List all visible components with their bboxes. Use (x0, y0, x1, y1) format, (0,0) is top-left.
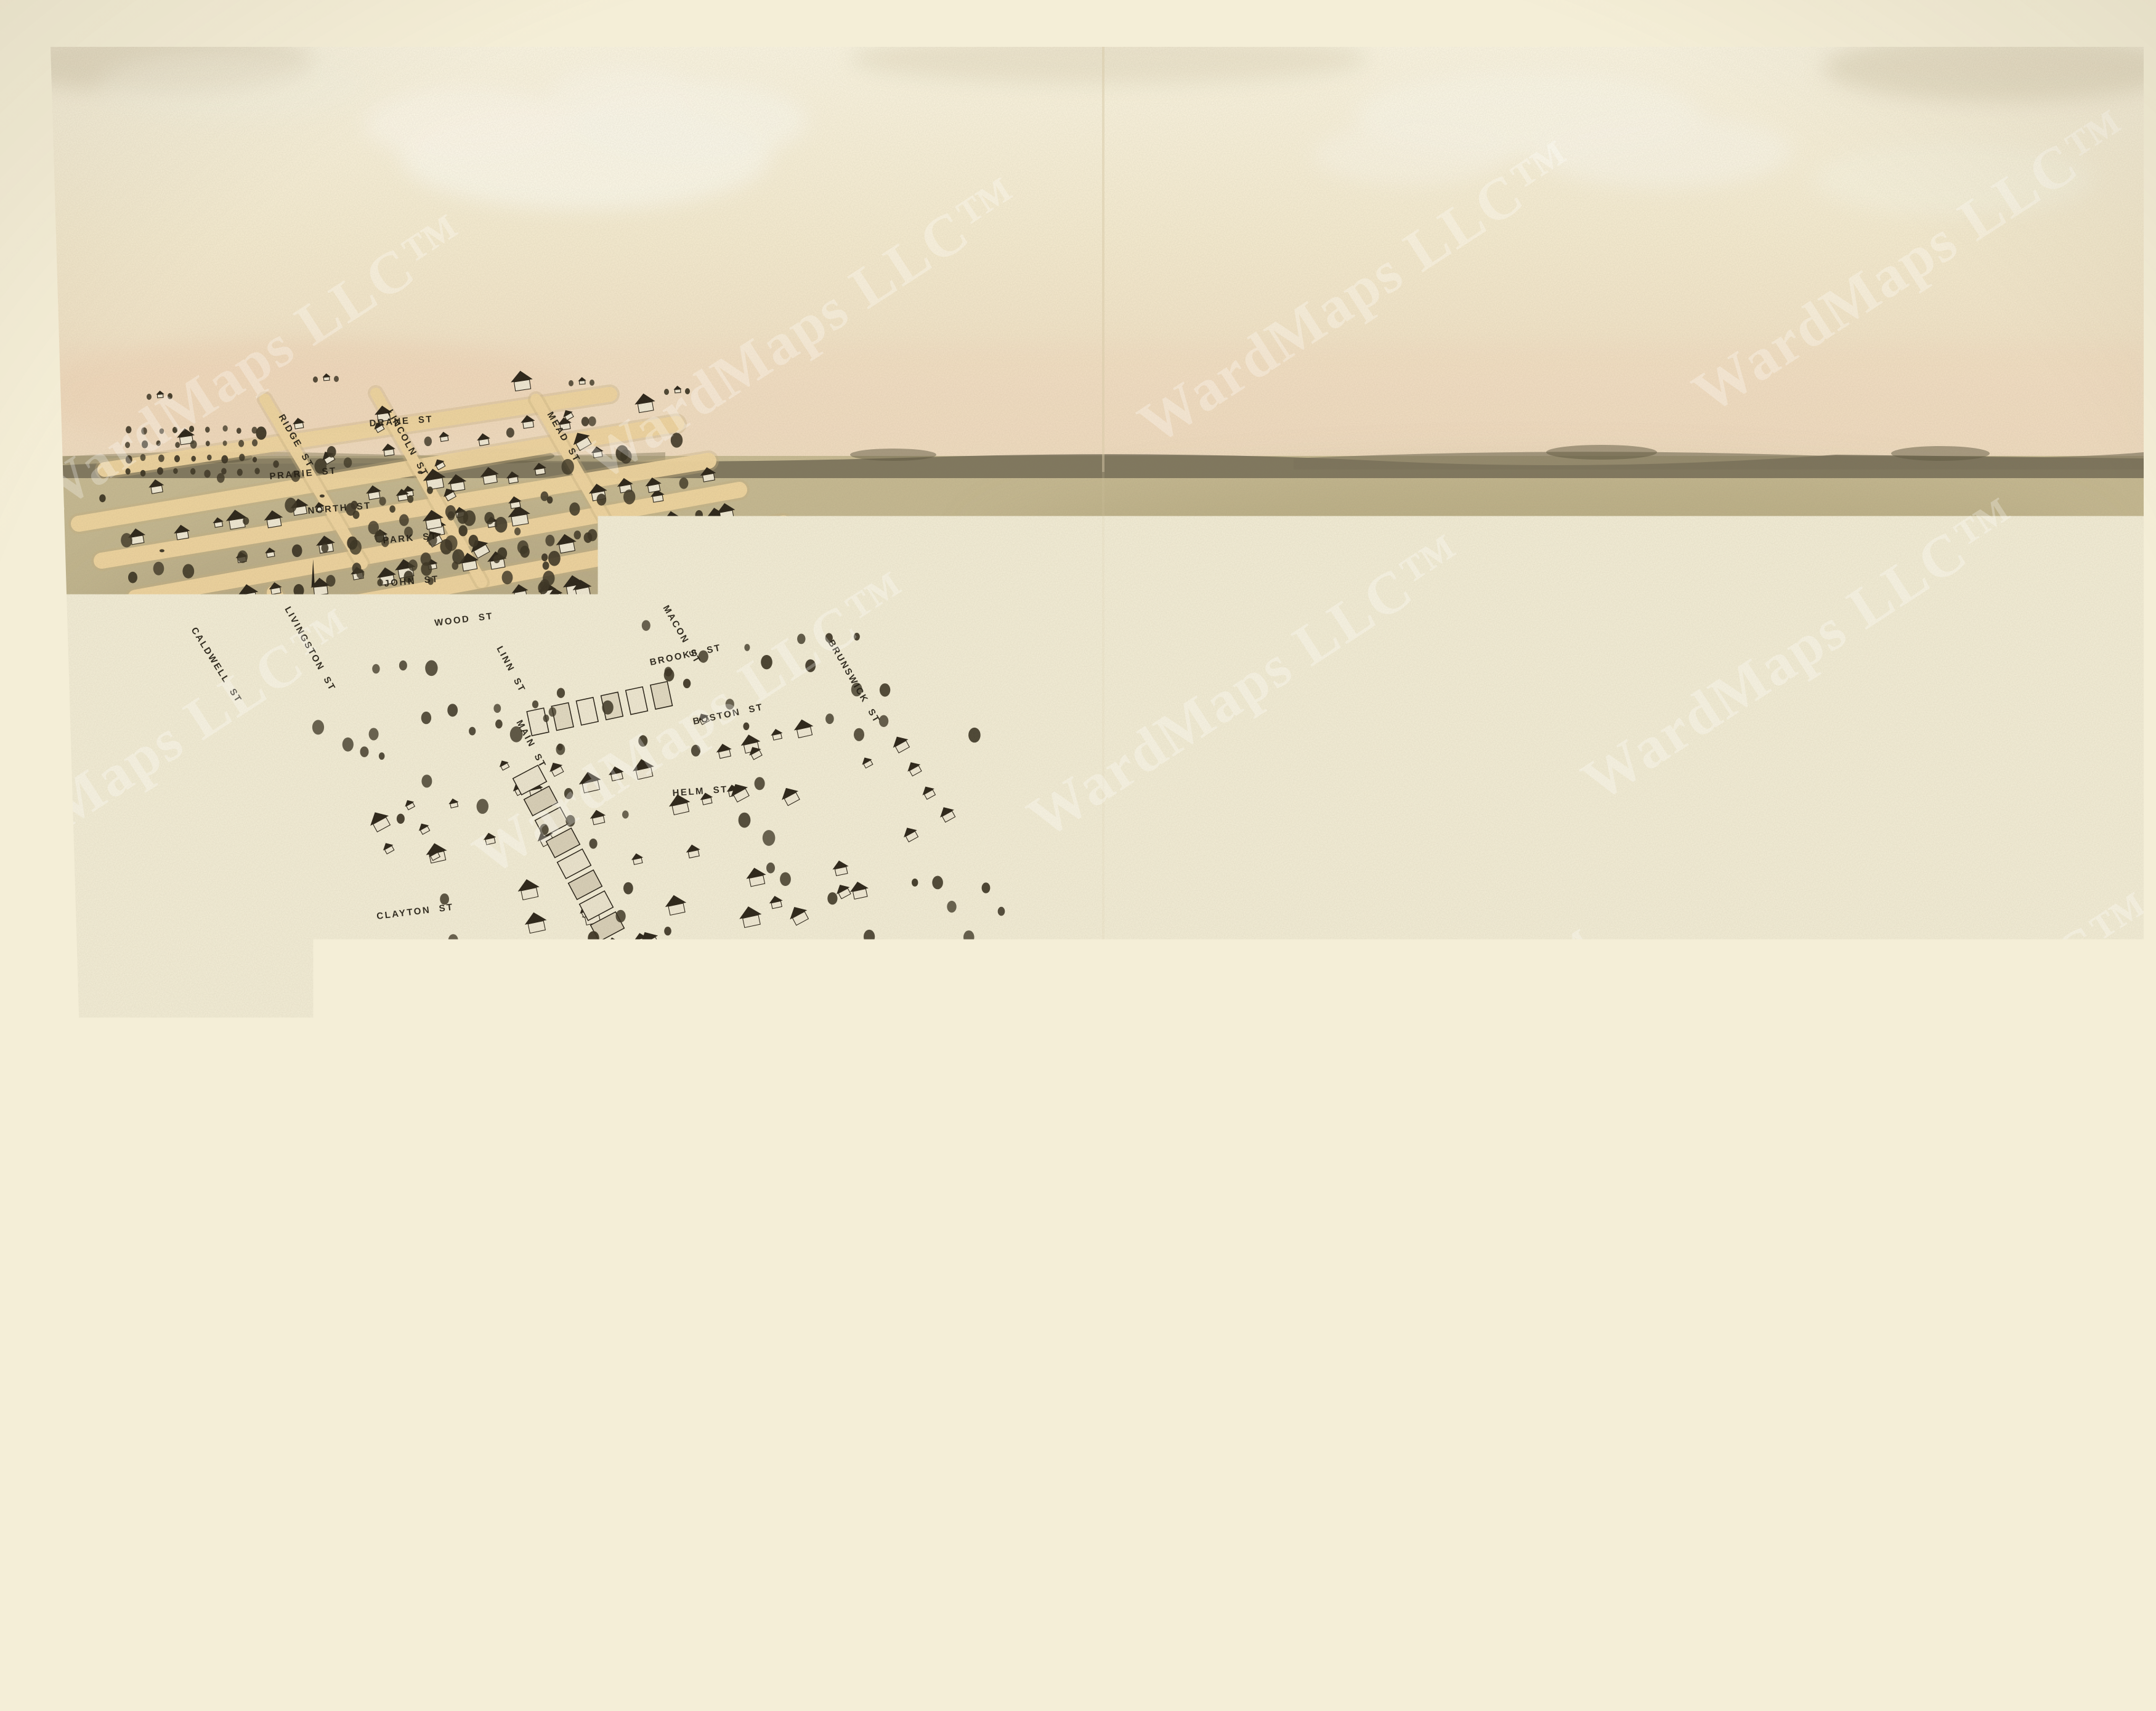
map-canvas: DRANE ST RIDGE ST LINCOLN ST MEAD ST PRA… (0, 0, 2156, 1711)
vignette (0, 0, 2156, 1711)
lithograph-page: DRANE ST RIDGE ST LINCOLN ST MEAD ST PRA… (0, 0, 2156, 1711)
map-subtitle: LINN CO. MISSOURI 1869 (953, 1636, 1193, 1652)
map-title: BROOKFIELD (916, 1575, 1228, 1620)
map-credit: DRAWN BY A RUGER (188, 1527, 307, 1538)
